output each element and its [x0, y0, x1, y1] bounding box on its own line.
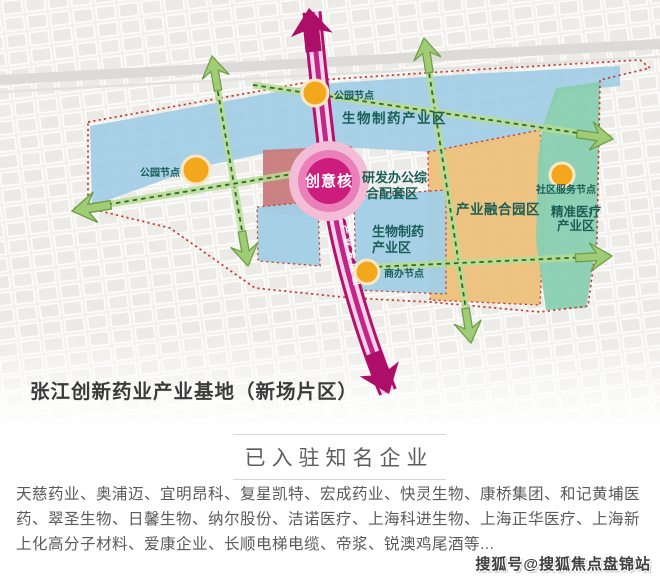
node-label-community: 社区服务节点 — [535, 183, 596, 196]
creative-core-label: 创意核 — [304, 172, 353, 190]
company-list: 天慈药业、奥浦迈、宜明昂科、复星凯特、宏成药业、快灵生物、康桥集团、和记黄埔医药… — [0, 482, 660, 557]
node-park-top-marker — [302, 80, 328, 106]
zone-label-biopharma-lower-line1: 生物制药 — [372, 224, 424, 239]
node-label-park-top: 公园节点 — [334, 89, 374, 102]
planning-map-container: 南北产业发展轴 创意核 生物制药产业区 研发办公综 合配套区 生物制药 产业区 … — [0, 0, 660, 430]
node-label-business: 商办节点 — [384, 267, 424, 280]
section-header-wrap: 已入驻知名企业 — [0, 434, 660, 480]
zone-label-biopharma-top: 生物制药产业区 — [342, 110, 447, 126]
zone-label-biopharma-lower-line2: 产业区 — [372, 240, 411, 255]
zone-label-rd-complex-line2: 合配套区 — [366, 186, 418, 201]
watermark: 搜狐号@搜狐焦点盘锦站 — [475, 553, 651, 574]
creative-core: 创意核 — [289, 141, 369, 221]
node-business-marker — [355, 260, 379, 284]
map-fade — [0, 330, 660, 430]
section-header: 已入驻知名企业 — [233, 434, 446, 480]
zone-label-precision-line1: 精准医疗 — [551, 204, 602, 219]
zone-label-precision-line2: 产业区 — [557, 218, 595, 233]
zone-label-industry-fusion: 产业融合园区 — [456, 201, 540, 217]
planning-map: 南北产业发展轴 创意核 生物制药产业区 研发办公综 合配套区 生物制药 产业区 … — [0, 0, 660, 430]
zone-label-rd-complex-line1: 研发办公综 — [362, 170, 427, 185]
map-title: 张江创新药业产业基地（新场片区） — [30, 380, 358, 403]
node-label-park-left: 公园节点 — [140, 166, 180, 179]
node-park-left-marker — [182, 156, 210, 184]
node-community-marker — [550, 163, 574, 187]
